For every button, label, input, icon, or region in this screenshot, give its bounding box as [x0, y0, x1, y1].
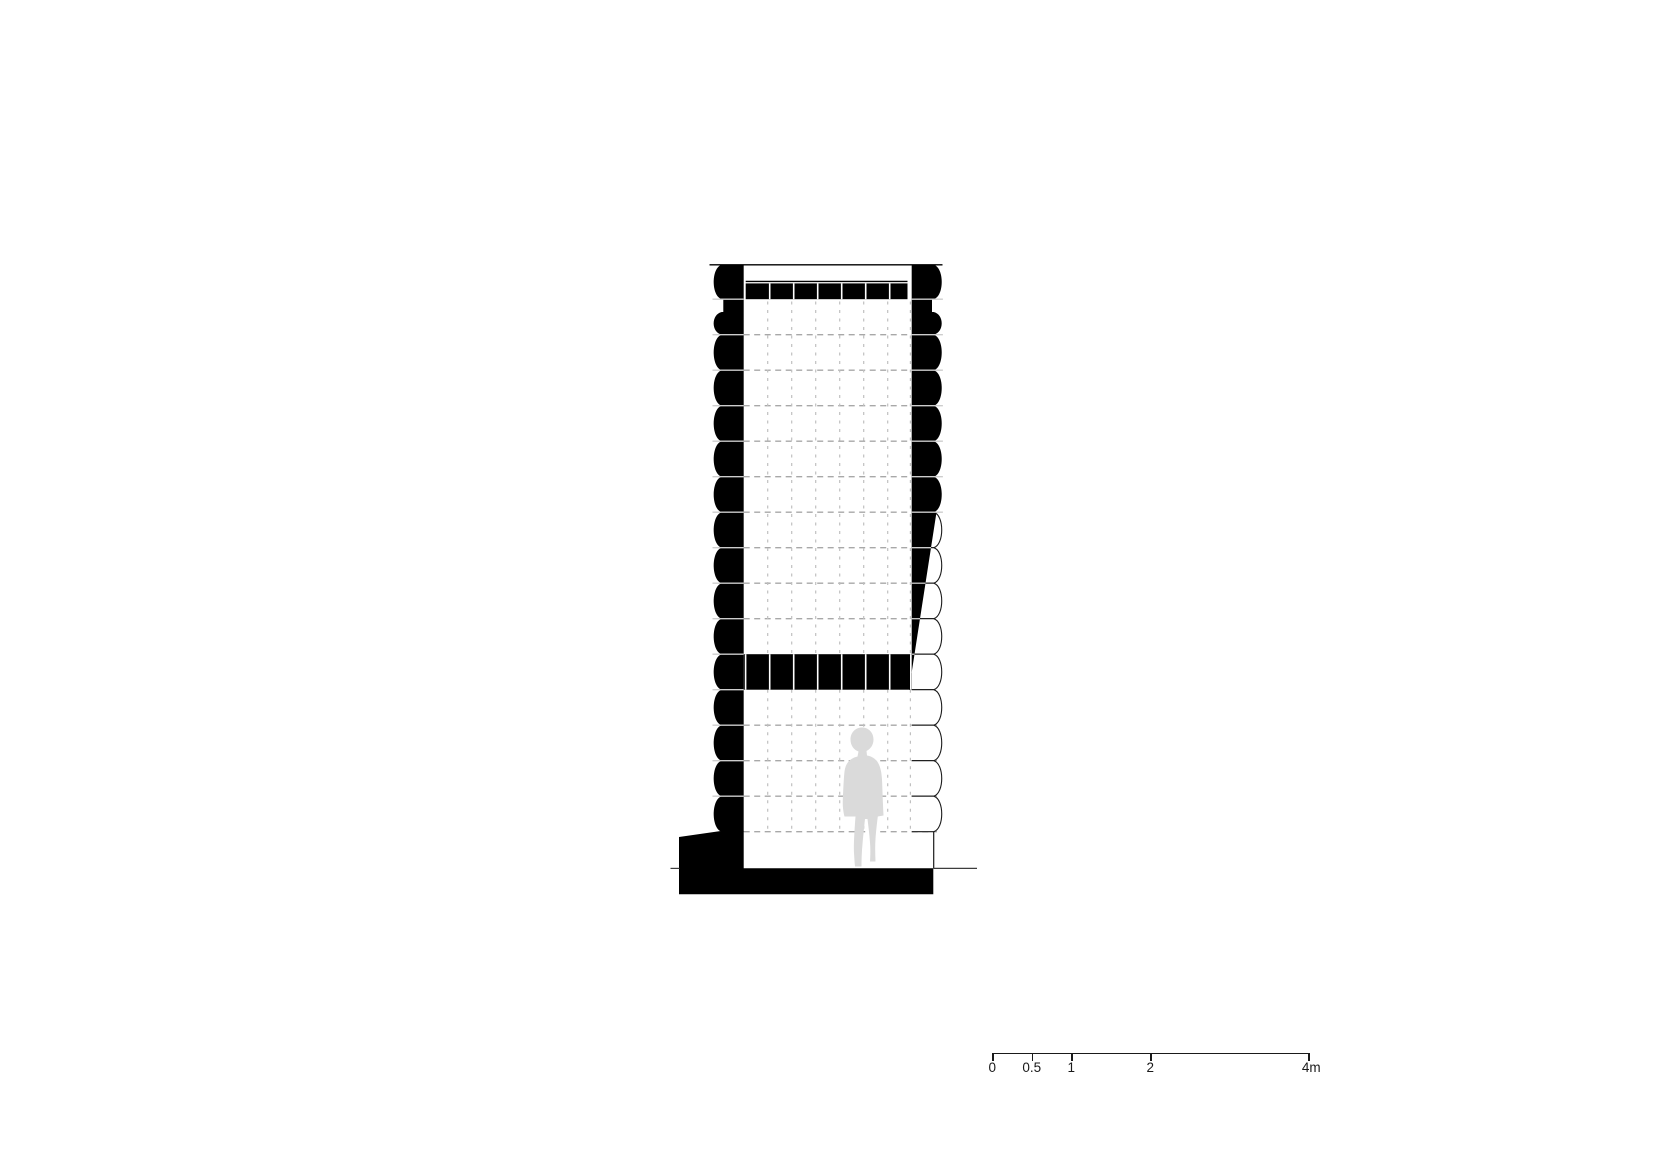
section-drawing — [0, 0, 1654, 1169]
mid-floor-band — [744, 654, 912, 690]
foundation — [679, 831, 933, 894]
scale-bar-label: 0 — [989, 1060, 997, 1075]
scale-bar-label: 0.5 — [1022, 1060, 1041, 1075]
drawing-canvas: 0 0.5 1 2 4m — [0, 0, 1654, 1169]
modular-grid — [744, 302, 937, 833]
scale-bar-label: 2 — [1147, 1060, 1155, 1075]
right-wall-cut — [912, 265, 942, 512]
roof-assembly — [710, 265, 943, 299]
human-figure — [843, 728, 884, 867]
scale-bar-label: 1 — [1068, 1060, 1076, 1075]
scale-bar-label: 4m — [1302, 1060, 1321, 1075]
